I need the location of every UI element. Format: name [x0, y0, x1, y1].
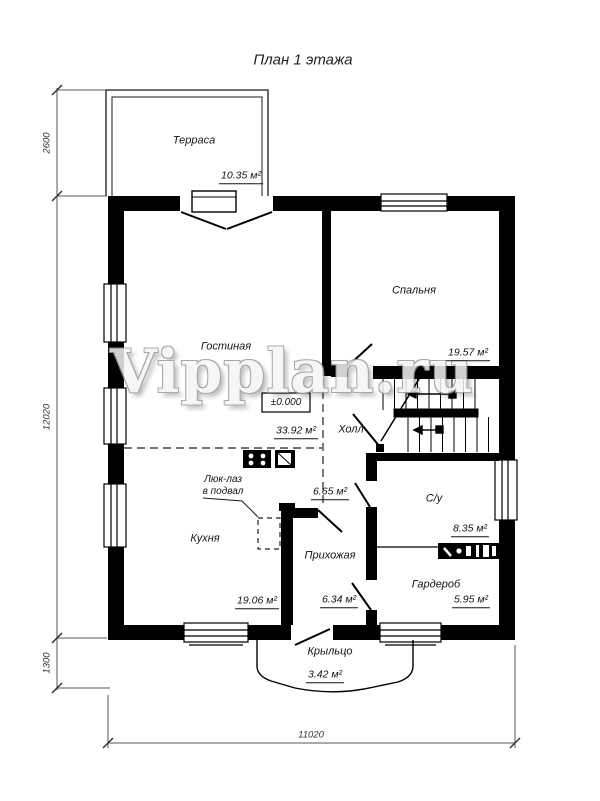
room-label-entry: Прихожая [304, 551, 355, 562]
stove [243, 450, 271, 468]
area-label-terrace: 10.35 м² [219, 170, 263, 184]
plan-title: План 1 этажа [253, 53, 352, 68]
elevation-mark: ±0.000 [271, 398, 302, 408]
window-kitchen-side [104, 484, 126, 547]
room-label-terrace: Терраса [173, 136, 215, 147]
area-label-living: 33.92 м² [274, 425, 318, 439]
door-entry-hall [318, 510, 342, 532]
hatch-label-line1: Люк-лаз [204, 475, 242, 485]
area-label-hall: 6.65 м² [311, 486, 349, 500]
window-bedroom [381, 194, 447, 211]
room-label-hall: Холл [338, 425, 363, 436]
window-bathroom [495, 460, 517, 520]
room-label-living: Гостиная [201, 342, 251, 353]
dim-house-width: 11020 [298, 730, 324, 740]
area-label-wardrobe: 5.95 м² [452, 594, 490, 608]
window-living-1 [104, 284, 126, 342]
area-label-entry: 6.34 м² [320, 594, 358, 608]
room-label-porch: Крыльцо [307, 647, 352, 658]
stairs-arrow-lower [414, 426, 443, 434]
window-wardrobe [380, 623, 441, 645]
bathroom-fixtures [377, 543, 499, 559]
room-label-bathroom: С/у [426, 494, 443, 505]
door-bathroom [355, 483, 370, 507]
dim-porch-depth: 1300 [42, 652, 52, 673]
stairs-lower-flight [408, 417, 489, 452]
floorplan-page: Vipplan.ru План 1 этажа Терраса 10.35 м²… [0, 0, 600, 801]
window-kitchen-bottom [184, 623, 248, 645]
hatch-leader-line [203, 498, 258, 517]
windows [104, 194, 517, 645]
room-label-kitchen: Кухня [190, 534, 219, 545]
area-label-bedroom: 19.57 м² [446, 347, 490, 361]
basement-hatch-outline [258, 518, 280, 549]
room-label-wardrobe: Гардероб [412, 580, 460, 591]
room-label-bedroom: Спальня [392, 286, 436, 297]
kitchen-fixtures [243, 450, 295, 468]
dim-house-depth: 12020 [42, 404, 52, 430]
area-label-bathroom: 8.35 м² [451, 523, 489, 537]
dim-terrace-depth: 2600 [42, 132, 52, 153]
stairs-landing [394, 409, 478, 417]
hatch-label-line2: в подвал [203, 487, 244, 497]
area-label-kitchen: 19.06 м² [235, 595, 279, 609]
area-label-porch: 3.42 м² [306, 669, 344, 683]
